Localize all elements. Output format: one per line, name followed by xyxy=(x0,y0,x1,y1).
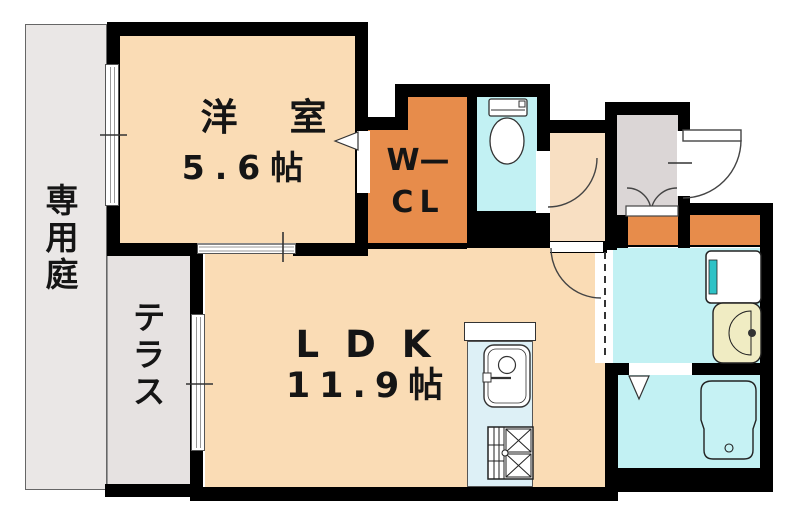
wall xyxy=(605,115,617,250)
wall xyxy=(368,243,467,249)
wall xyxy=(107,243,200,256)
terrace-label: テラス xyxy=(132,300,170,435)
ldk-size: 11.9帖 xyxy=(205,367,524,406)
western-room-label: 洋室 xyxy=(120,98,407,139)
toilet-room-area xyxy=(477,97,537,211)
wall xyxy=(760,203,773,492)
entry-area xyxy=(617,115,678,215)
western-room-size: 5.6帖 xyxy=(120,150,365,186)
washroom-area xyxy=(613,248,760,363)
wcl-label-line1: W— xyxy=(368,144,468,177)
wall xyxy=(467,97,477,211)
wall xyxy=(107,22,368,36)
wall xyxy=(617,215,628,248)
wall xyxy=(395,84,550,97)
wall xyxy=(678,203,773,215)
wcl-label-line2: CL xyxy=(368,186,468,219)
wall xyxy=(293,243,368,256)
entry-shoe-cabinet xyxy=(628,216,678,247)
front-door-leaf xyxy=(683,130,741,141)
hall-area xyxy=(550,133,607,243)
washroom-storage-cabinet xyxy=(690,215,760,247)
toilet-door-opening xyxy=(536,151,550,213)
hall-ldk-door-opening xyxy=(550,242,603,252)
private-garden-label: 専用庭 xyxy=(45,183,83,323)
bathroom-area xyxy=(618,375,760,468)
front-door-arc xyxy=(683,140,741,198)
wall xyxy=(467,211,550,248)
wall xyxy=(605,468,773,492)
wall xyxy=(190,487,618,501)
wall xyxy=(105,484,200,497)
wall xyxy=(678,215,690,248)
floor-plan: 洋室 5.6帖 LDK 11.9帖 W— CL 専用庭 テラス xyxy=(0,0,800,528)
ldk-terrace-window xyxy=(191,314,205,451)
bathroom-door-opening xyxy=(629,363,692,375)
entry-front-door-opening xyxy=(677,131,691,196)
western-room-area xyxy=(120,36,355,244)
ldk-label: LDK xyxy=(205,325,521,366)
western-room-window xyxy=(105,64,119,206)
western-room-ldk-slider xyxy=(197,243,296,254)
washroom-passage xyxy=(595,248,613,363)
